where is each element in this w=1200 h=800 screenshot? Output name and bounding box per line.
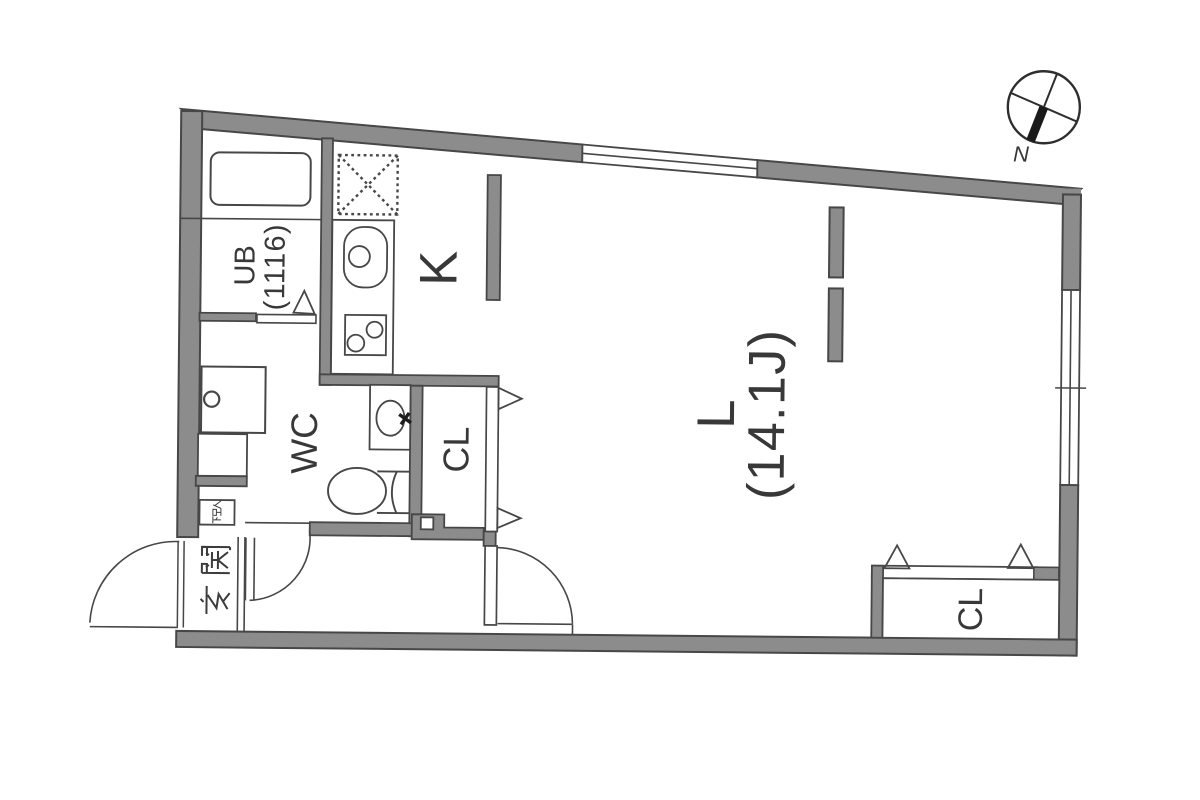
svg-text:N: N xyxy=(1013,141,1029,166)
svg-text:(14.1J): (14.1J) xyxy=(737,330,797,501)
svg-text:UB: UB xyxy=(229,245,261,286)
svg-text:(1116): (1116) xyxy=(259,224,292,310)
svg-text:CL: CL xyxy=(435,426,476,472)
svg-text:WC: WC xyxy=(284,412,326,474)
svg-text:K: K xyxy=(409,250,468,286)
svg-text:CL: CL xyxy=(952,588,990,632)
